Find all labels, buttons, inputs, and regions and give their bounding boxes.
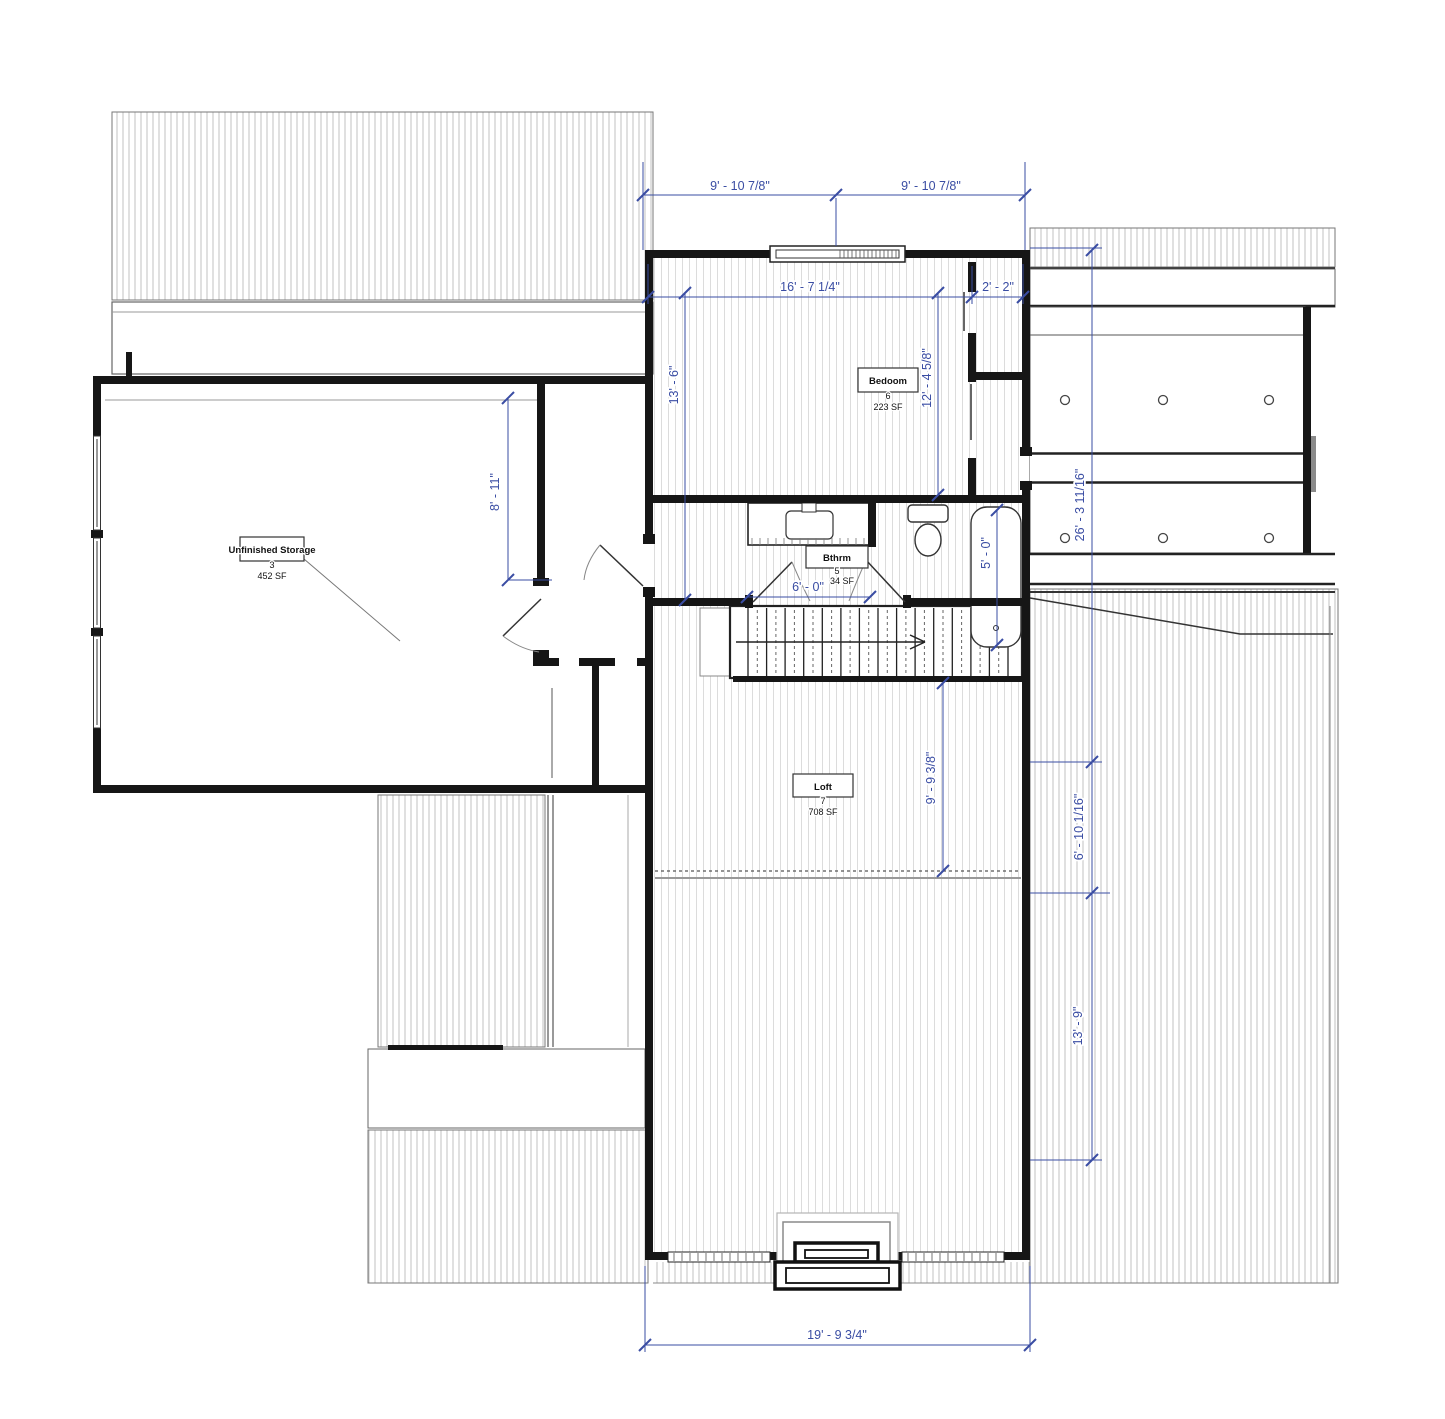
room-number: 3 [269,560,274,570]
faucet-icon [802,503,816,512]
eave-band-right-mid [1030,553,1335,585]
roof-hatch-bottom-left-lower [368,1130,648,1283]
stair-landing [700,608,730,676]
dim-right-height: 12' - 4 5/8" [920,348,934,408]
storage-door [503,599,541,652]
bath-bottom-wall [645,598,753,606]
room-name: Bedoom [869,376,907,387]
dim-storage-side: 8' - 11" [488,473,502,511]
dim-top-left: 9' - 10 7/8" [710,179,770,193]
deck-rail-post [1311,436,1316,492]
floor-plan-sheet: Unfinished Storage 3 452 SF Bedoom 6 223… [0,0,1445,1419]
dim-loft-depth: 9' - 9 3/8" [924,752,938,805]
storage-top-wall [95,376,653,384]
chimney-bay [775,1213,900,1289]
storage-bottom-wall [93,785,653,793]
room-area: 34 SF [830,576,855,586]
storage-interior-wall [537,384,545,578]
bathtub [971,507,1021,647]
room-area: 452 SF [257,571,287,581]
dim-right-total: 26' - 3 11/16" [1073,469,1087,542]
deck-right-wall [1303,307,1311,553]
storage-left-wall [93,376,101,436]
roof-hatch-top-left [112,112,653,300]
roof-hatch-right-lower [1030,589,1338,1283]
room-name: Bthrm [823,553,851,564]
roof-hatch-bottom-left-upper [378,795,545,1047]
room-number: 6 [885,391,890,401]
stair-lower-wall [733,676,1022,682]
dim-roof-lower: 13' - 9" [1071,1007,1085,1046]
vanity-sink [748,503,872,545]
room-name: Unfinished Storage [228,545,315,556]
top-window [770,246,905,262]
left-wall-windows [94,436,101,728]
closet-divider-wall [592,666,599,790]
eave-band-top-left [112,302,653,374]
room-tag-storage: Unfinished Storage 3 452 SF [228,537,400,641]
eave-band-top-right [1030,269,1335,307]
dim-roof-mid: 6' - 10 1/16" [1072,794,1086,861]
floor-plan-drawing: Unfinished Storage 3 452 SF Bedoom 6 223… [0,0,1445,1419]
dim-left-height: 13' - 6" [667,366,681,405]
dim-bottom-width: 19' - 9 3/4" [807,1328,867,1342]
hall-door [584,545,643,586]
room-area: 223 SF [873,402,903,412]
bath-top-wall [645,495,1030,503]
dim-top-right: 9' - 10 7/8" [901,179,961,193]
dim-bath-width: 6' - 0" [792,580,824,594]
dim-closet-width: 2' - 2" [982,280,1014,294]
eave-band-bottom-left [368,1049,645,1128]
loft-top-wall [645,250,770,258]
room-name: Loft [814,782,833,793]
dim-room-width: 16' - 7 1/4" [780,280,840,294]
loft-floor-hatch [653,258,1022,1252]
room-area: 708 SF [808,807,838,817]
dim-tub-length: 5' - 0" [979,537,993,569]
room-number: 7 [820,796,825,806]
leader-line [304,559,400,641]
room-number: 5 [834,566,839,576]
